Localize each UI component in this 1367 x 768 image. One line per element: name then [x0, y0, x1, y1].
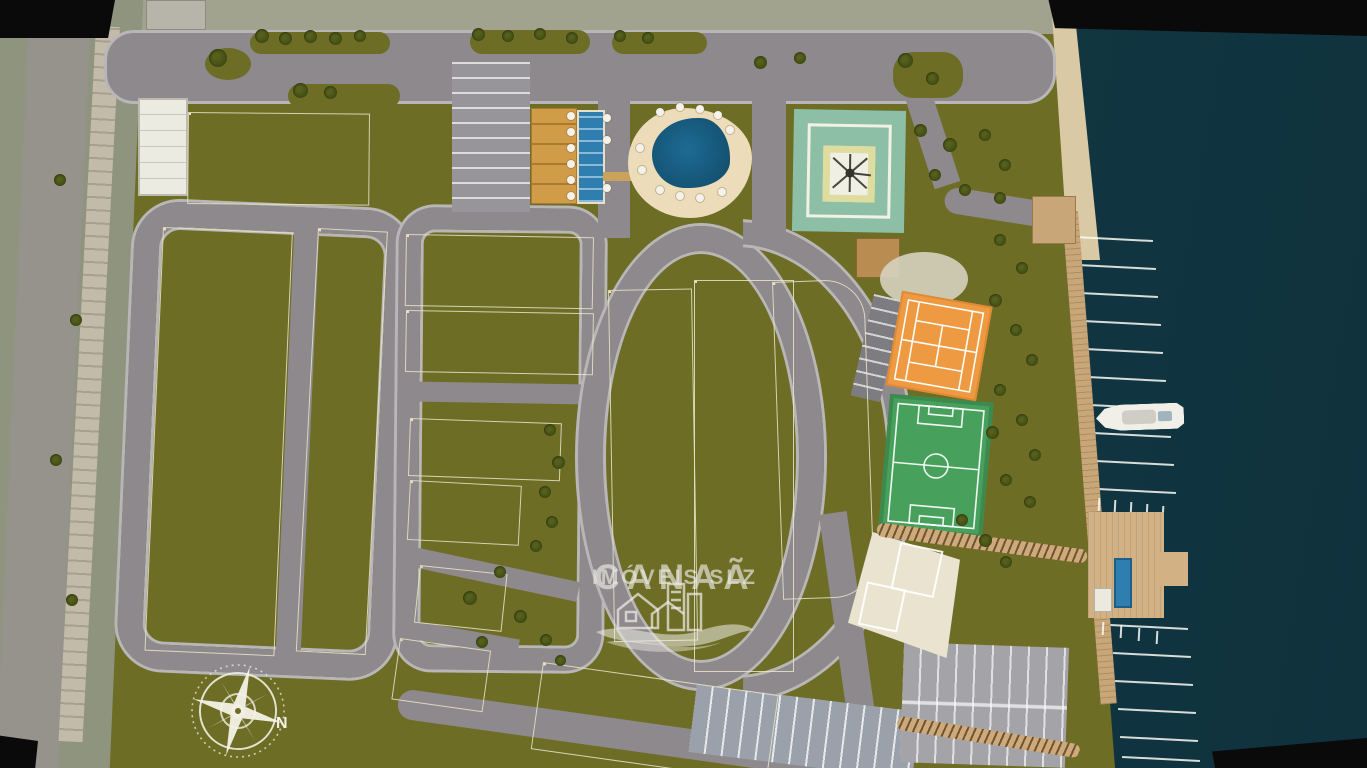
corner-mask-top-left: [0, 0, 115, 38]
lot-37: 37383,20m²: [421, 566, 423, 568]
club-access-road-east: [752, 98, 786, 238]
tennis-lines: [888, 293, 991, 399]
lot-block-south-row: 61331,45m²62277,40m²63275,03m²6465455,26…: [531, 662, 779, 768]
tree: [614, 30, 626, 42]
lot-area: 287,75m²: [411, 481, 413, 483]
tree: [514, 610, 527, 623]
lot-number: 42: [411, 419, 413, 421]
pool-umbrella: [696, 105, 704, 113]
tree: [999, 159, 1011, 171]
tree: [476, 636, 488, 648]
pool-umbrella: [603, 184, 611, 192]
tree: [324, 86, 337, 99]
tree: [979, 534, 992, 547]
marina-plunge-pool: [1114, 558, 1132, 608]
clubhouse-building: [531, 108, 577, 204]
lot-area: 271,84m²: [164, 228, 166, 230]
tree: [354, 30, 366, 42]
tree: [1016, 414, 1028, 426]
tree: [534, 28, 546, 40]
tree: [794, 52, 806, 64]
tree: [959, 184, 971, 196]
tree: [642, 32, 654, 44]
tree: [1029, 449, 1041, 461]
road-median-island: [612, 32, 707, 54]
lot-block-36: 36444,20m²: [391, 638, 491, 712]
lot-number: 35: [319, 229, 321, 231]
lot-area: 274,45m²: [411, 419, 413, 421]
helicopter-icon: [827, 150, 874, 197]
lot-block-37: 37383,20m²: [414, 565, 508, 632]
tree: [66, 594, 78, 606]
tree: [1010, 324, 1022, 336]
soccer-lines: [883, 398, 990, 534]
tree: [209, 49, 227, 67]
tree: [994, 192, 1006, 204]
pool-umbrella: [636, 144, 644, 152]
pool-umbrella: [567, 160, 575, 168]
lot-area: 275,20m²: [695, 281, 697, 283]
tree: [552, 456, 565, 469]
tree: [986, 426, 999, 439]
lot-block-oval-west: 52363,25m²53285,20m²54291,46m²55304,35m²…: [608, 289, 698, 642]
lot-block-47-51: 47330,25m²48275,03m²49275,03m²50275,00m²…: [405, 234, 594, 309]
lot-39: 39287,75m²: [411, 481, 413, 483]
tree: [1000, 474, 1012, 486]
tree: [546, 516, 558, 528]
lot-number: 66: [695, 281, 697, 283]
tree: [566, 32, 578, 44]
lot-60: 60275,46m²: [609, 291, 611, 293]
entrance-building: [138, 98, 188, 196]
tree: [293, 83, 308, 98]
pool-umbrella: [726, 126, 734, 134]
tree: [1000, 556, 1012, 568]
lot-number: 46: [407, 311, 409, 313]
tree: [989, 294, 1002, 307]
lot-42: 42274,45m²: [411, 419, 413, 421]
tree: [956, 514, 968, 526]
helipad: [792, 109, 906, 233]
tree: [279, 32, 292, 45]
pool-umbrella: [656, 108, 664, 116]
lot-area: 333,40m²: [319, 229, 321, 231]
tree: [994, 234, 1006, 246]
tree: [754, 56, 767, 69]
tree: [530, 540, 542, 552]
lot-block-38-39: 38281,25m²39287,75m²: [407, 480, 522, 546]
soccer-field: [878, 394, 993, 539]
tree: [304, 30, 317, 43]
pool-umbrella: [718, 188, 726, 196]
lot-number: 65: [544, 663, 546, 665]
compass-north-label: N: [276, 715, 288, 732]
tree: [54, 174, 66, 186]
lap-pool: [577, 110, 605, 204]
lot-number: 36: [401, 639, 403, 641]
lot-65: 65455,26m²: [544, 663, 546, 665]
tree: [539, 486, 551, 498]
lot-block-43-46: 43293,02m²44275,03m²45275,08m²46405,29m²: [405, 310, 594, 375]
pool-umbrella: [676, 192, 684, 200]
lot-46: 46405,29m²: [407, 311, 409, 313]
tree: [929, 169, 941, 181]
tennis-court: [885, 291, 992, 402]
site-plan: 05333,85m²04333,85m²03333,85m²02333,85m²…: [0, 0, 1367, 768]
lot-number: 51: [407, 235, 409, 237]
tree: [544, 424, 556, 436]
pool-umbrella: [638, 166, 646, 174]
lot-area: 459,20m²: [773, 283, 775, 285]
tree: [1026, 354, 1038, 366]
lot-area: 455,26m²: [544, 663, 546, 665]
lot-area: 444,20m²: [401, 639, 403, 641]
tree: [555, 655, 566, 666]
tree: [472, 28, 485, 41]
tree: [943, 138, 957, 152]
lot-number: 81: [773, 283, 775, 285]
central-cross-road-1: [404, 381, 596, 404]
clubhouse-parking: [452, 62, 530, 212]
lot-number: 39: [411, 481, 413, 483]
lagoon-pool: [652, 118, 730, 188]
pool-umbrella: [714, 111, 722, 119]
tree: [1024, 496, 1036, 508]
lot-area: 288,79m²: [407, 235, 409, 237]
lot-number: 37: [421, 566, 423, 568]
compass-rose-icon: N: [188, 656, 298, 766]
lot-area: 350,15m²: [189, 113, 191, 115]
lot-35: 35333,40m²: [319, 229, 321, 231]
pool-umbrella: [676, 103, 684, 111]
road-median-island: [250, 32, 390, 54]
lot-25: 25271,84m²: [164, 228, 166, 230]
lot-51: 51288,79m²: [407, 235, 409, 237]
yacht-cabin: [1158, 411, 1172, 421]
marina-hut: [1094, 588, 1112, 612]
marina-deck-wing: [1160, 552, 1188, 586]
tree: [463, 591, 477, 605]
tree: [494, 566, 506, 578]
lot-66: 66275,20m²: [695, 281, 697, 283]
dock-building: [1032, 196, 1076, 244]
lot-81: 81459,20m²: [773, 283, 775, 285]
lot-block-top-row: 05333,85m²04333,85m²03333,85m²02333,85m²…: [187, 112, 370, 206]
pool-umbrella: [567, 144, 575, 152]
lot-area: 275,46m²: [609, 291, 611, 293]
lot-number: 01: [189, 113, 191, 115]
tree: [50, 454, 62, 466]
tree: [898, 53, 913, 68]
tree: [540, 634, 552, 646]
pool-umbrella: [603, 136, 611, 144]
tree: [70, 314, 82, 326]
yacht-deck: [1122, 409, 1156, 424]
pool-umbrella: [603, 114, 611, 122]
tree: [1016, 262, 1028, 274]
lot-block-east-crescent: 76331,07m²77447,84m²78494,45m²79520,64m²…: [772, 279, 875, 600]
pool-umbrella: [567, 112, 575, 120]
lot-number: 25: [164, 228, 166, 230]
tree: [502, 30, 514, 42]
pool-umbrella: [567, 176, 575, 184]
gatehouse-building: [146, 0, 206, 30]
pool-umbrella: [656, 186, 664, 194]
pool-umbrella: [567, 128, 575, 136]
lot-area: 383,20m²: [421, 566, 423, 568]
tree: [914, 124, 927, 137]
tree: [255, 29, 269, 43]
tree: [979, 129, 991, 141]
tree: [926, 72, 939, 85]
lot-number: 60: [609, 291, 611, 293]
lot-01: 01350,15m²: [189, 113, 191, 115]
lot-36: 36444,20m²: [401, 639, 403, 641]
pool-umbrella: [696, 194, 704, 202]
tree: [329, 32, 342, 45]
tree: [994, 384, 1006, 396]
lot-area: 405,29m²: [407, 311, 409, 313]
lot-block-40-42: 40331,02m²41275,08m²42274,45m²: [408, 418, 562, 481]
pool-umbrella: [567, 192, 575, 200]
lot-block-west: 06365,40m²07234,15m²08236,90m²09238,70m²…: [145, 227, 293, 656]
